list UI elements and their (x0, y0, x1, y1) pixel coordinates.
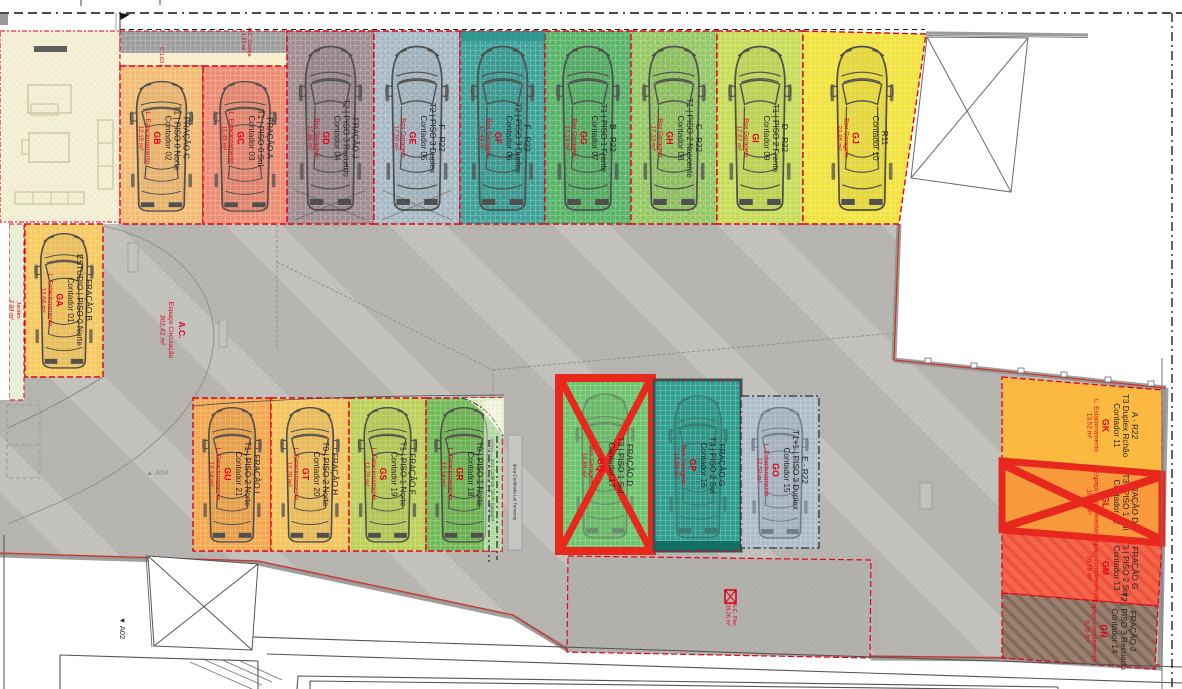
svg-text:Espaço complementar: Espaço complementar (1091, 599, 1098, 663)
svg-text:Box Garagem: Box Garagem (680, 445, 687, 484)
svg-text:FRAÇÃO J: FRAÇÃO J (1128, 611, 1138, 652)
svg-text:GU: GU (223, 467, 233, 480)
svg-text:GP: GP (688, 459, 698, 472)
svg-text:Contador 03: Contador 03 (247, 115, 256, 161)
svg-text:Contador 09: Contador 09 (762, 115, 771, 161)
svg-text:T2 | PISO 3 Recuado: T2 | PISO 3 Recuado (1119, 592, 1128, 670)
svg-text:L. Estacionamento: L. Estacionamento (47, 274, 54, 327)
svg-text:T1 | PISO 0 Norte: T1 | PISO 0 Norte (173, 106, 182, 171)
svg-text:T1 | PISO 2 Norte: T1 | PISO 2 Norte (243, 442, 252, 507)
svg-text:T1 | PISO 1 Norte: T1 | PISO 1 Norte (399, 442, 408, 507)
svg-text:17,13 m²: 17,13 m² (564, 125, 571, 150)
svg-text:Box Garagem: Box Garagem (843, 118, 850, 157)
svg-text:A.C.: A.C. (177, 322, 187, 339)
svg-text:Contador 11: Contador 11 (1112, 403, 1121, 448)
svg-text:T0 | PISO 1 Norte: T0 | PISO 1 Norte (475, 442, 484, 507)
svg-text:T3 | PISO 2 Sul: T3 | PISO 2 Sul (708, 437, 717, 494)
svg-text:GM: GM (1101, 561, 1111, 575)
svg-text:L. Estacionamento: L. Estacionamento (763, 444, 770, 497)
svg-text:T1 | PISO 2 Frente: T1 | PISO 2 Frente (771, 104, 780, 173)
svg-text:área Cedência Talude Particula: área Cedência Talude Particular (491, 459, 496, 522)
svg-text:GS: GS (378, 468, 388, 481)
svg-text:D - R22: D - R22 (780, 124, 789, 153)
svg-text:GT: GT (301, 468, 311, 481)
svg-text:F - R22: F - R22 (437, 124, 446, 152)
svg-text:2,84 m²: 2,84 m² (8, 300, 14, 320)
svg-text:T2 | PISO 3 Duplex: T2 | PISO 3 Duplex (428, 103, 437, 173)
svg-text:T3 | PISO 2 Sul: T3 | PISO 2 Sul (1121, 540, 1130, 597)
svg-text:Box Garagem: Box Garagem (400, 118, 407, 157)
svg-text:T2 | PISO 3 Duplex: T2 | PISO 3 Duplex (514, 103, 523, 173)
svg-text:Contador 15: Contador 15 (782, 447, 791, 493)
svg-text:GR: GR (455, 467, 465, 481)
svg-text:Box Garagem: Box Garagem (588, 445, 595, 484)
svg-text:FRAÇÃO H: FRAÇÃO H (330, 453, 340, 495)
svg-text:12,50 m²: 12,50 m² (756, 457, 763, 482)
svg-text:13,52 m²: 13,52 m² (1086, 413, 1093, 438)
svg-text:Contador 16: Contador 16 (699, 442, 708, 488)
svg-text:Contador 07: Contador 07 (590, 115, 599, 161)
svg-text:▲ A04: ▲ A04 (146, 468, 168, 477)
svg-text:E - R22: E - R22 (800, 456, 809, 484)
svg-text:Contador 14: Contador 14 (1110, 608, 1119, 654)
svg-text:Box Garagem: Box Garagem (313, 118, 320, 157)
svg-text:L. Estacionamento: L. Estacionamento (228, 112, 235, 165)
svg-text:GQ: GQ (596, 458, 606, 472)
svg-text:FRAÇÃO B: FRAÇÃO B (84, 279, 94, 321)
svg-text:Box Garagem: Box Garagem (571, 118, 578, 157)
svg-text:FRAÇÃO I: FRAÇÃO I (252, 455, 262, 494)
svg-text:L. Estacionamento: L. Estacionamento (215, 448, 222, 501)
svg-text:GG: GG (579, 131, 589, 145)
svg-text:GN: GN (1099, 624, 1109, 637)
svg-text:Jardim: Jardim (15, 301, 21, 319)
svg-text:Contador 05: Contador 05 (419, 115, 428, 161)
svg-text:12,14 m²: 12,14 m² (440, 461, 447, 486)
svg-text:T1+1 | PISO 3 Duplex: T1+1 | PISO 3 Duplex (791, 430, 800, 510)
svg-text:11,45 m²: 11,45 m² (221, 126, 228, 151)
svg-text:17,43 m²: 17,43 m² (478, 125, 485, 150)
svg-text:F - R22: F - R22 (523, 124, 532, 152)
svg-text:▼ A02: ▼ A02 (118, 617, 127, 639)
svg-text:Contador 02: Contador 02 (164, 115, 173, 161)
svg-text:B - R22: B - R22 (608, 124, 617, 152)
svg-text:L. Estacionamento: L. Estacionamento (144, 112, 151, 165)
svg-text:Contador 19: Contador 19 (390, 451, 399, 497)
svg-text:Contador 04: Contador 04 (333, 115, 342, 161)
svg-text:FRAÇÃO F: FRAÇÃO F (408, 453, 418, 494)
svg-text:FRAÇÃO D: FRAÇÃO D (625, 444, 635, 486)
svg-text:FRAÇÃO J: FRAÇÃO J (351, 118, 361, 159)
svg-text:Contador 01: Contador 01 (66, 277, 75, 323)
svg-text:Espaço complementar: Espaço complementar (1093, 536, 1100, 600)
svg-text:R11: R11 (880, 131, 889, 146)
svg-text:GO: GO (771, 463, 781, 477)
svg-text:L. Estacionamento: L. Estacionamento (370, 448, 377, 501)
svg-text:L. Estacionamento: L. Estacionamento (447, 448, 454, 501)
svg-text:12,14 m²: 12,14 m² (208, 461, 215, 486)
svg-text:Contador 08: Contador 08 (676, 115, 685, 161)
svg-text:Contador 18: Contador 18 (466, 451, 475, 497)
svg-text:14,89 m²: 14,89 m² (673, 452, 680, 477)
svg-text:17,67 m²: 17,67 m² (736, 125, 743, 150)
svg-text:12,66 m²: 12,66 m² (40, 287, 47, 312)
svg-text:17,50 m²: 17,50 m² (393, 125, 400, 150)
svg-text:A.C. Pav.: A.C. Pav. (731, 603, 737, 627)
svg-text:T1 | PISO 0 Sul: T1 | PISO 0 Sul (256, 110, 265, 167)
svg-text:28,26 m²: 28,26 m² (725, 604, 731, 626)
svg-text:Contador 21: Contador 21 (234, 451, 243, 497)
svg-text:GJ: GJ (851, 132, 861, 144)
svg-text:área Cedência Lei Terrenos: área Cedência Lei Terrenos (513, 464, 518, 521)
svg-text:Box Garagem: Box Garagem (485, 118, 492, 157)
svg-text:FRAÇÃO G: FRAÇÃO G (1130, 547, 1140, 590)
svg-text:12,70 m²: 12,70 m² (363, 461, 370, 486)
svg-text:GB: GB (152, 131, 162, 144)
svg-text:Contador 13: Contador 13 (1112, 545, 1121, 591)
svg-text:GD: GD (321, 131, 331, 144)
svg-text:T3 Duplex Rchão: T3 Duplex Rchão (1121, 394, 1130, 458)
svg-text:A - R22: A - R22 (1130, 412, 1139, 440)
svg-text:T2 | PISO 3 Recuado: T2 | PISO 3 Recuado (342, 99, 351, 177)
svg-text:9,45 m²: 9,45 m² (1084, 620, 1091, 642)
svg-text:C - R22: C - R22 (694, 124, 703, 153)
svg-text:Espaço Circulação: Espaço Circulação (167, 302, 174, 359)
svg-text:1,53 m²: 1,53 m² (240, 33, 246, 51)
svg-text:T3 | PISO 1 Sul: T3 | PISO 1 Sul (616, 437, 625, 494)
svg-text:GF: GF (493, 132, 503, 145)
svg-text:GC: GC (236, 131, 246, 145)
svg-text:GE: GE (408, 132, 418, 145)
svg-text:L. Estacionamento: L. Estacionamento (1093, 399, 1100, 452)
svg-text:12,15 m²: 12,15 m² (137, 125, 144, 150)
svg-text:Box Garagem: Box Garagem (743, 118, 750, 157)
svg-text:T1 | PISO 1 Frente: T1 | PISO 1 Frente (599, 104, 608, 173)
svg-text:GI: GI (751, 133, 761, 142)
svg-text:Contador 17: Contador 17 (607, 442, 616, 488)
svg-text:17,13 m²: 17,13 m² (650, 125, 657, 150)
svg-text:10,58 m²: 10,58 m² (1086, 555, 1093, 580)
svg-text:GA: GA (55, 293, 65, 307)
svg-text:ESTÚDIO | PISO 0 Norte: ESTÚDIO | PISO 0 Norte (75, 254, 85, 346)
svg-text:GK: GK (1101, 419, 1111, 433)
svg-text:FRAÇÃO C: FRAÇÃO C (182, 117, 192, 159)
svg-text:L. Estacionamento: L. Estacionamento (293, 448, 300, 501)
svg-text:Contador 06: Contador 06 (505, 115, 514, 161)
svg-text:T0 | PISO 2 Norte: T0 | PISO 2 Norte (321, 442, 330, 507)
svg-text:14,89 m²: 14,89 m² (581, 452, 588, 477)
svg-text:17,86 m²: 17,86 m² (306, 125, 313, 150)
svg-text:23,85 m²: 23,85 m² (836, 125, 843, 150)
svg-text:302,42 m²: 302,42 m² (159, 315, 166, 346)
svg-text:Contador 10: Contador 10 (871, 115, 880, 161)
svg-text:FRAÇÃO A: FRAÇÃO A (265, 117, 275, 159)
svg-text:FRAÇÃO G: FRAÇÃO G (717, 444, 727, 487)
svg-text:Contador 20: Contador 20 (312, 451, 321, 497)
svg-text:Box Garagem: Box Garagem (657, 118, 664, 157)
svg-text:T1 | PISO 2 Nascente: T1 | PISO 2 Nascente (685, 98, 694, 178)
svg-text:GH: GH (665, 131, 675, 144)
svg-text:12,70 m²: 12,70 m² (286, 461, 293, 486)
